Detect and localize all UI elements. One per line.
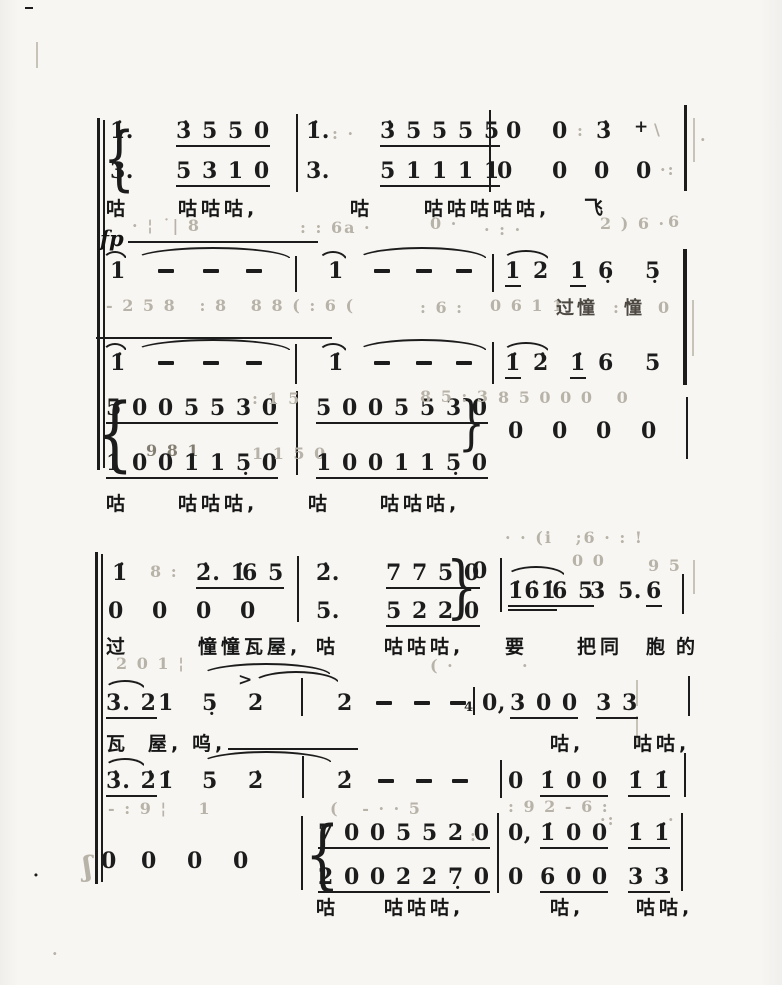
note: 0 (152, 598, 168, 624)
lyric: 咕咕咕, (384, 896, 464, 920)
barline (101, 554, 103, 882)
barline (681, 813, 683, 891)
barline (500, 760, 502, 798)
note-group: 6 5 (242, 560, 284, 589)
notation-mark: 4 (464, 700, 473, 715)
barline (473, 687, 475, 715)
note: 0, (482, 690, 506, 716)
note: 0, (508, 820, 532, 846)
note: 2̇. (316, 560, 340, 586)
lyric: 咕, (550, 896, 584, 920)
bleed-text: · (668, 810, 676, 829)
bleed-text: · (522, 656, 530, 675)
sheet-music-page: {{}1̇.3̇ 5 5 01̇.3̇ 5 5 5 5003̇+\:: ·3.5… (0, 0, 782, 985)
bleed-text: ( · (430, 656, 455, 675)
note: 5̣ (202, 690, 218, 716)
lyric: 咕 (316, 635, 339, 659)
note: 2̇ (337, 768, 353, 794)
note: 2 (248, 690, 264, 716)
slur-tie (104, 758, 146, 768)
line (25, 7, 33, 9)
note-group: 3̇. 2̇ (106, 768, 157, 797)
barline (684, 753, 686, 797)
bleed-text: 2 0 1 ¦ (116, 654, 186, 673)
note-group: 7 0 0 5 5 2 0 (318, 820, 490, 849)
system-2: }{· · (i ;6 · : !1̇8 :2̇. 1̇6 52̇.7 7 5 … (0, 0, 782, 985)
bleed-text: ·: (600, 810, 615, 829)
bleed-text: · · (i ;6 · : ! (505, 528, 644, 547)
note: 0 (108, 598, 124, 624)
note: 3 (590, 578, 606, 604)
note: 0 (508, 864, 524, 890)
barline (500, 558, 502, 612)
note-group: 6 5 (552, 578, 594, 607)
barline (301, 816, 303, 890)
note: 0 (233, 848, 249, 874)
line (228, 748, 358, 750)
note: 5. (316, 598, 340, 624)
notation-mark: > (238, 670, 252, 690)
note: 1 (158, 690, 174, 716)
lyric: 呜, (192, 732, 226, 756)
duration-dash (378, 779, 394, 783)
bleed-text: · (52, 944, 60, 963)
note: 5. (618, 578, 642, 604)
barline (692, 300, 694, 356)
lyric: 胞 (646, 635, 669, 659)
barline (682, 574, 684, 614)
duration-dash (376, 701, 392, 705)
slur-tie (104, 680, 146, 690)
note-group: 2 0 0 2 2 7̣ 0 (318, 864, 490, 893)
note-group: 1̇6̇1̇ (508, 578, 557, 611)
note: 0 (508, 768, 524, 794)
barline (36, 42, 38, 68)
note: 5 (202, 768, 218, 794)
bleed-text: 9 5 (648, 556, 682, 575)
lyric: 憧憧瓦屋, (198, 635, 301, 659)
barline (688, 676, 690, 716)
barline (693, 118, 695, 162)
note: 0 (240, 598, 256, 624)
bleed-text: 8 : (150, 562, 179, 581)
notation-mark: · (33, 866, 39, 886)
note-group: 2̇. 1̇ (196, 560, 247, 589)
bleed-text: 0 0 (572, 551, 606, 570)
bleed-text: - : 9 ¦ 1 (108, 799, 212, 818)
lyric: 咕咕, (636, 896, 693, 920)
slur-tie (506, 566, 566, 577)
duration-dash (414, 701, 430, 705)
note: 1̇ (158, 768, 174, 794)
note-group: 7 7 5 0 (386, 560, 480, 589)
note: 0 (101, 848, 117, 874)
note-group: 3 3 (596, 690, 638, 719)
note-group: 1̇ 1̇ (628, 768, 670, 797)
bleed-text: ʃ (83, 850, 94, 883)
bleed-text: ( - · · 5 (330, 799, 422, 818)
note-group: 5 2 2 0 (386, 598, 480, 627)
note-group: 1̇ 1̇ (628, 820, 670, 849)
lyric: 咕 (316, 896, 339, 920)
note: 1̇ (112, 560, 128, 586)
note-group: 3 0 0 (510, 690, 578, 719)
note: 0 (472, 558, 488, 584)
lyric: 把同 (577, 635, 623, 659)
lyric: 咕, (550, 732, 584, 756)
lyric: 瓦 (106, 732, 129, 756)
note: 0 (196, 598, 212, 624)
barline (297, 556, 299, 622)
barline (693, 560, 695, 594)
lyric: 屋, (148, 732, 182, 756)
duration-dash (416, 779, 432, 783)
bleed-text: · (700, 130, 708, 149)
note-group: 1̇ 0 0 (540, 768, 608, 797)
note-group: 3. 2 (106, 690, 157, 719)
note: 0 (141, 848, 157, 874)
note: 6 (646, 578, 662, 607)
barline (497, 813, 499, 893)
bleed-text: : 9 2 - 6 : (508, 797, 610, 816)
barline (95, 552, 98, 884)
note-group: 6 0 0 (540, 864, 608, 893)
note-group: 1̇ 0 0 (540, 820, 608, 849)
note: 2̇ (248, 768, 264, 794)
lyric: 的 (676, 635, 699, 659)
note-group: 3 3 (628, 864, 670, 893)
duration-dash (452, 779, 468, 783)
note: 0 (187, 848, 203, 874)
lyric: 咕咕, (633, 732, 690, 756)
bleed-text: : (470, 826, 478, 845)
note: 2 (337, 690, 353, 716)
